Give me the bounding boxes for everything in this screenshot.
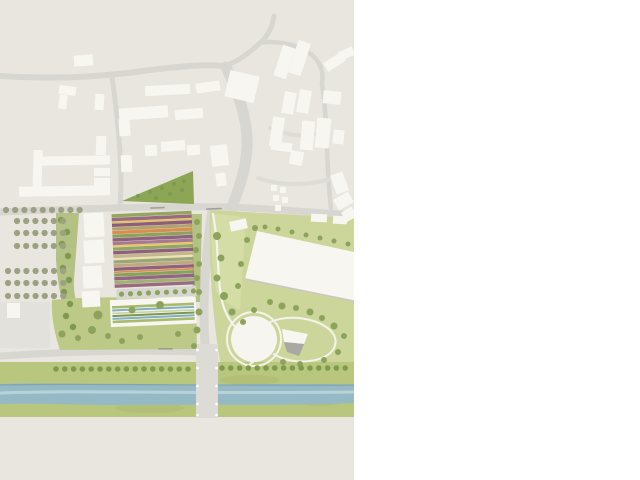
site-plan-page [0,0,640,480]
orchard-tree [23,230,29,236]
tree [156,301,164,309]
bridge [196,344,218,418]
tree [196,289,202,295]
orchard-tree [14,280,20,286]
tree [279,303,286,310]
tree [62,366,68,372]
tree [194,219,200,225]
orchard-tree [51,243,57,249]
tree [304,233,309,238]
river [0,383,354,405]
building [300,120,315,150]
tree [220,292,228,300]
tree [80,366,86,372]
orchard-tree [5,293,11,299]
orchard-tree [5,280,11,286]
plan-clip-group [0,0,357,480]
tree [119,338,125,344]
orchard-tree [51,268,57,274]
tree [75,335,81,341]
field-complex [106,211,198,327]
orchard-tree [23,243,29,249]
tree [66,277,72,283]
tree [182,179,186,183]
bridge-dot [196,385,199,388]
tree [219,365,225,371]
building [82,266,102,289]
orchard-tree [14,293,20,299]
tree [94,311,103,320]
orchard-tree [60,218,66,224]
orchard-tree [42,268,48,274]
tree [59,331,66,338]
orchard-tree [60,268,66,274]
bridge-dot [196,349,199,352]
tree [246,365,252,371]
tree [137,334,143,340]
tree [150,366,156,372]
tree [332,239,337,244]
building [118,119,130,137]
tree [88,326,96,334]
tree [293,305,299,311]
tree [280,359,286,365]
tree [148,190,152,194]
orchard-tree [23,280,29,286]
orchard-tree [51,218,57,224]
bridge-dot [215,349,218,352]
tree [229,309,236,316]
building [19,185,110,197]
orchard-tree [23,218,29,224]
bridge-dot [215,385,218,388]
orchard-tree [14,268,20,274]
tree [341,333,347,339]
tree [235,283,241,289]
building [322,90,341,105]
building [96,136,107,155]
tree [335,349,341,355]
tree [159,366,165,372]
building [82,291,101,308]
orchard-tree [33,293,39,299]
orchard-tree [42,218,48,224]
tree [194,275,200,281]
tree [176,366,182,372]
tree [307,309,314,316]
tree [194,327,201,334]
orchard-tree [14,230,20,236]
tree [160,186,164,190]
tree [196,309,203,316]
building [83,239,104,263]
orchard-tree [33,268,39,274]
tree [238,261,244,267]
tree [115,366,121,372]
building [332,130,344,145]
tree [252,225,258,231]
tree [290,365,296,371]
orchard-tree [60,280,66,286]
building [7,303,20,318]
building [74,54,94,66]
tree [88,366,94,372]
tree [175,331,181,337]
tree [319,315,325,321]
orchard-tree [42,243,48,249]
tree [263,225,268,230]
building [83,212,104,237]
river-highlight [0,392,354,393]
orchard-tree [51,293,57,299]
orchard-tree [14,243,20,249]
tree [105,333,111,339]
tree [218,255,225,262]
orchard-tree [42,293,48,299]
tree [228,365,234,371]
building [271,185,277,191]
tree [191,343,197,349]
orchard-tree [51,230,57,236]
orchard-tree [60,230,66,236]
orchard-tree [12,207,18,213]
building [94,94,104,111]
tree [63,313,69,319]
orchard-tree [23,293,29,299]
tree [154,196,158,200]
tree [193,247,199,253]
building [58,95,68,110]
building [42,155,110,165]
orchard-tree [32,230,38,236]
tree [71,366,77,372]
tree [168,366,174,372]
orchard-tree [58,207,64,213]
tree [67,301,73,307]
tree [196,261,202,267]
tree [334,365,340,371]
orchard-tree [32,218,38,224]
orchard-tree [67,207,73,213]
building [289,150,304,166]
tree [129,307,136,314]
building [215,173,226,187]
street-label-mark [158,348,173,350]
tree [70,324,76,330]
orchard-tree [3,207,9,213]
corridor-mottle-patch [220,375,280,385]
building [161,140,186,152]
tree [185,366,191,372]
tree [342,365,348,371]
orchard-tree [21,207,27,213]
building [210,144,229,167]
bridge-dot [196,403,199,406]
orchard-tree [42,230,48,236]
tree [254,365,260,371]
building [275,205,281,211]
tree [267,299,273,305]
tree [53,366,59,372]
building [282,197,288,203]
tree [141,366,147,372]
tree [244,237,250,243]
tree [124,366,130,372]
building [273,195,279,201]
bridge-dot [215,414,218,417]
tree [298,365,304,371]
building [121,155,133,172]
orchard-tree [5,268,11,274]
orchard-tree [60,293,66,299]
tree [97,366,103,372]
tree [180,188,184,192]
orchard-tree [49,207,55,213]
bridge-dot [196,367,199,370]
tree [307,365,313,371]
site-plan-drawing [0,0,640,480]
tree [172,182,176,186]
tree [331,323,338,330]
tree [321,357,327,363]
orchard-tree [42,280,48,286]
tree [346,242,351,247]
orchard-tree [30,207,36,213]
orchard-tree [14,218,20,224]
tree [281,365,287,371]
orchard-tree [51,280,57,286]
bridge-dot [196,414,199,417]
tree [272,365,278,371]
bridge-deck [196,344,218,418]
building [315,117,332,148]
tree [196,233,202,239]
orchard-tree [23,268,29,274]
tree [65,253,71,259]
tree [251,307,257,313]
building [311,214,327,223]
tree [316,365,322,371]
orchard-tree [77,207,83,213]
tree [237,365,243,371]
tree [318,236,323,241]
tree [106,366,112,372]
tree [263,365,269,371]
building [187,145,201,156]
tree [132,366,138,372]
bridge-dot [215,403,218,406]
tree [136,194,140,198]
building [333,216,347,225]
orchard-tree [60,243,66,249]
orchard-tree [33,280,39,286]
tree [214,275,221,282]
building [280,187,286,193]
building [94,168,110,176]
building [94,178,110,186]
orchard-tree [40,207,46,213]
tree [240,319,246,325]
orchard-tree [32,243,38,249]
building [145,145,158,157]
tree [276,227,281,232]
tree [290,230,295,235]
tree [325,365,331,371]
tree [213,232,221,240]
tree [168,192,172,196]
circle-plaza [231,316,277,362]
bridge-dot [215,367,218,370]
